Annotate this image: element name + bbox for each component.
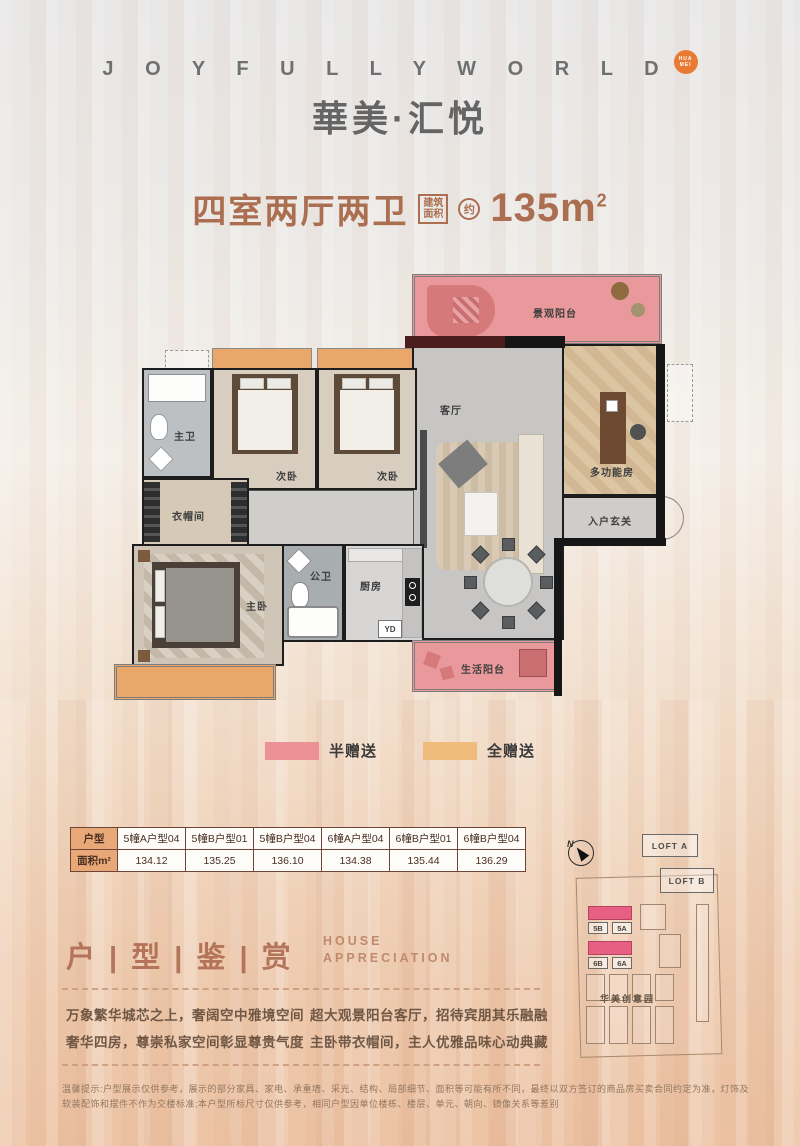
balcony-stool [440, 666, 455, 681]
appreciation-en-line1: HOUSE [323, 934, 382, 948]
sink-counter [148, 374, 206, 402]
area-sup: 2 [597, 191, 608, 211]
site-block [655, 1006, 674, 1044]
compass-needle [573, 844, 589, 861]
building-loft-a: LOFT A [642, 834, 698, 857]
disclaimer-text: 温馨提示:户型展示仅供参考，展示的部分家具、家电、承重墙、采光、结构、局部细节、… [62, 1082, 756, 1112]
copy-column-1: 万象繁华城芯之上，奢阔空中雅境空间 奢华四房，尊崇私家空间彰显尊贵气度 [66, 1002, 306, 1056]
copy-line: 超大观景阳台客厅，招待宾朋其乐融融 [310, 1002, 550, 1029]
half-gift-swatch [265, 742, 319, 760]
unit-spec-table: 户型 5幢A户型04 5幢B户型01 5幢B户型04 6幢A户型04 6幢B户型… [70, 827, 526, 872]
plant-icon [631, 303, 645, 317]
wardrobe [231, 482, 247, 542]
site-block [586, 1006, 605, 1044]
legend: 半赠送 全赠送 [0, 740, 800, 761]
site-building [696, 904, 709, 1022]
bed-pillow [369, 378, 393, 389]
unit-area-cell: 134.38 [322, 850, 390, 872]
wall-segment [505, 336, 565, 348]
area-label-line2: 面积 [423, 209, 443, 220]
site-block [655, 974, 674, 1001]
gift-strip-a [212, 348, 312, 370]
full-gift-swatch [423, 742, 477, 760]
room-master-balcony [114, 664, 276, 700]
area-value: 135m2 [490, 186, 607, 231]
site-map: N LOFT A LOFT B 5B 5A 6B 6A [564, 826, 748, 1066]
balcony-rug [453, 297, 479, 323]
row-header-area: 面积m² [71, 850, 118, 872]
room-label-master: 主卧 [246, 598, 268, 613]
bed-mattress [238, 390, 292, 450]
building-6b: 6B [588, 957, 608, 969]
bed-pillow [342, 378, 366, 389]
legend-item-full-gift: 全赠送 [423, 740, 535, 761]
room-life-balcony: 生活阳台 [412, 640, 559, 692]
room-label-multi: 多功能房 [590, 464, 634, 479]
room-label-bedroom-a: 次卧 [276, 468, 298, 483]
copy-column-2: 超大观景阳台客厅，招待宾朋其乐融融 主卧带衣帽间，主人优雅品味心动典藏 [310, 1002, 550, 1056]
building-5-highlight [588, 906, 632, 920]
laundry-box: YD [378, 620, 402, 638]
loft-a-label: LOFT A [652, 841, 688, 851]
dining-chair [540, 576, 553, 589]
row-header-type: 户型 [71, 828, 118, 850]
brand-badge-icon: HUAMEI [674, 50, 698, 74]
room-label-bedroom-b: 次卧 [377, 468, 399, 483]
unit-type-cell: 6幢B户型04 [458, 828, 526, 850]
gift-strip-b [317, 348, 417, 370]
logo-row: J O Y F U L L Y W O R L DHUAMEI [0, 58, 800, 82]
wall-segment [656, 344, 665, 542]
unit-type-cell: 5幢B户型04 [254, 828, 322, 850]
building-6-highlight [588, 941, 632, 955]
unit-area-cell: 134.12 [118, 850, 186, 872]
copy-line: 主卧带衣帽间，主人优雅品味心动典藏 [310, 1029, 550, 1056]
unit-type-cell: 5幢A户型04 [118, 828, 186, 850]
unit-area-cell: 136.10 [254, 850, 322, 872]
copy-line: 奢华四房，尊崇私家空间彰显尊贵气度 [66, 1029, 306, 1056]
headline: 四室两厅两卫 建筑 面积 约 135m2 [0, 184, 800, 233]
room-label-foyer: 入户玄关 [588, 513, 632, 528]
dining-chair [502, 616, 515, 629]
bed-mattress [340, 390, 394, 450]
tv-console [420, 430, 427, 548]
room-cloakroom: 衣帽间 [142, 478, 249, 546]
room-master-bath: 主卫 [142, 368, 212, 478]
nightstand [138, 550, 150, 562]
unit-type-cell: 5幢B户型01 [186, 828, 254, 850]
building-5a: 5A [612, 922, 632, 934]
burner [409, 594, 416, 601]
bed-mattress [166, 568, 234, 642]
bathtub [287, 606, 339, 638]
wall-segment [554, 538, 666, 546]
room-master: 主卧 [132, 544, 284, 666]
entry-door-arc [662, 496, 684, 518]
building-5b-label: 5B [593, 924, 603, 933]
table-row-area: 面积m² 134.12 135.25 136.10 134.38 135.44 … [71, 850, 526, 872]
shower-tray [286, 548, 311, 573]
room-label-life-balcony: 生活阳台 [461, 661, 505, 676]
logo-english: J O Y F U L L Y W O R L D [102, 58, 671, 80]
dining-chair [464, 576, 477, 589]
approx-circle: 约 [458, 198, 480, 220]
appreciation-title-cn: 户 | 型 | 鉴 | 赏 [66, 934, 294, 976]
building-5a-label: 5A [617, 924, 627, 933]
plant-icon [611, 282, 629, 300]
unit-type-cell: 6幢B户型01 [390, 828, 458, 850]
site-building [640, 904, 666, 930]
dining-chair [471, 601, 489, 619]
north-label: N [567, 839, 574, 849]
balcony-stool [423, 651, 441, 669]
wardrobe [144, 482, 160, 542]
room-public-bath: 公卫 [282, 544, 344, 642]
wall-segment [554, 538, 562, 696]
full-gift-label: 全赠送 [487, 740, 535, 761]
room-living-dining: 客厅 [412, 344, 564, 640]
layout-title: 四室两厅两卫 [192, 184, 408, 233]
legend-item-half-gift: 半赠送 [265, 740, 377, 761]
unit-area-cell: 135.25 [186, 850, 254, 872]
wall-segment [405, 336, 505, 348]
dashed-divider [62, 1064, 540, 1066]
bed-pillow [155, 606, 165, 638]
building-5b: 5B [588, 922, 608, 934]
unit-area-cell: 136.29 [458, 850, 526, 872]
building-6b-label: 6B [593, 959, 603, 968]
room-label-view-balcony: 景观阳台 [533, 305, 577, 320]
nightstand [138, 650, 150, 662]
building-6a: 6A [612, 957, 632, 969]
area-number: 135m [490, 186, 596, 230]
table-row-type: 户型 5幢A户型04 5幢B户型01 5幢B户型04 6幢A户型04 6幢B户型… [71, 828, 526, 850]
dashed-divider [62, 988, 540, 990]
room-label-public-bath: 公卫 [310, 568, 332, 583]
park-label: 华美创意园 [600, 992, 655, 1005]
laptop [606, 400, 618, 412]
room-foyer: 入户玄关 [562, 496, 662, 540]
dining-chair [502, 538, 515, 551]
building-6a-label: 6A [617, 959, 627, 968]
dining-chair [527, 601, 545, 619]
floor-plan: 景观阳台 客厅 多功能房 [109, 268, 691, 704]
site-block [632, 1006, 651, 1044]
room-label-master-bath: 主卫 [174, 428, 196, 443]
room-label-cloakroom: 衣帽间 [172, 508, 205, 523]
room-view-balcony: 景观阳台 [412, 274, 662, 344]
entry-door-arc [662, 518, 684, 540]
north-compass-icon: N [568, 840, 594, 866]
logo-chinese: 華美·汇悦 [0, 90, 800, 142]
badge-line2: MEI [680, 62, 692, 68]
toilet [291, 582, 309, 608]
balcony-cabinet [519, 649, 547, 677]
unit-type-cell: 6幢A户型04 [322, 828, 390, 850]
toilet [150, 414, 168, 440]
burner [409, 582, 416, 589]
area-label-line1: 建筑 [423, 198, 443, 209]
appreciation-title-en: HOUSE APPRECIATION [323, 933, 453, 967]
laundry-label: YD [384, 625, 395, 634]
ac-platform [667, 364, 693, 422]
copy-line: 万象繁华城芯之上，奢阔空中雅境空间 [66, 1002, 306, 1029]
shower-tray [148, 446, 173, 471]
unit-area-cell: 135.44 [390, 850, 458, 872]
site-building [659, 934, 681, 968]
room-multi-function: 多功能房 [562, 344, 662, 496]
hallway [247, 490, 414, 546]
room-bedroom-b: 次卧 [317, 368, 417, 490]
office-chair [630, 424, 646, 440]
room-label-living: 客厅 [440, 402, 462, 417]
building-loft-b: LOFT B [660, 868, 714, 893]
half-gift-label: 半赠送 [329, 740, 377, 761]
loft-b-label: LOFT B [669, 876, 706, 886]
appreciation-en-line2: APPRECIATION [323, 951, 453, 965]
dining-table [483, 557, 533, 607]
room-bedroom-a: 次卧 [212, 368, 317, 490]
bed-pillow [155, 570, 165, 602]
bed-pillow [267, 378, 291, 389]
site-block [609, 1006, 628, 1044]
room-label-kitchen: 厨房 [360, 578, 382, 593]
coffee-table [464, 492, 498, 536]
room-kitchen: 厨房 YD [344, 544, 424, 642]
poster: J O Y F U L L Y W O R L DHUAMEI 華美·汇悦 四室… [0, 0, 800, 1146]
area-label-box: 建筑 面积 [418, 194, 448, 224]
bed-pillow [240, 378, 264, 389]
